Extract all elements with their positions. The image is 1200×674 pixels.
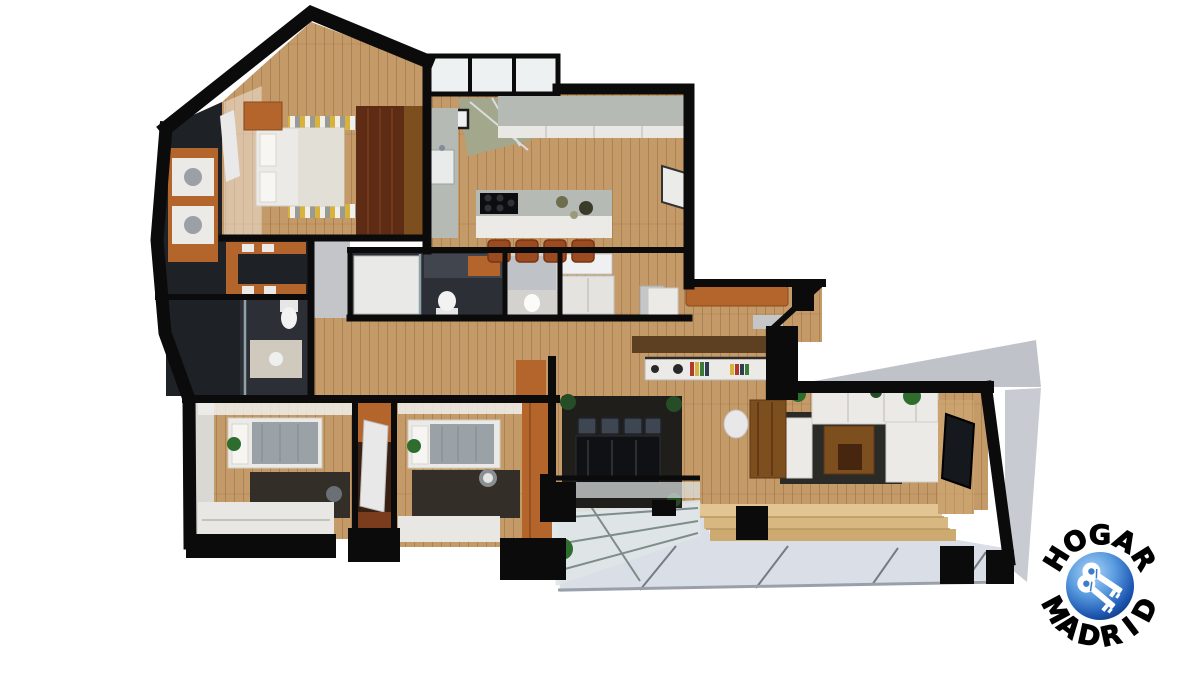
logo-letter: R [1098, 619, 1125, 654]
bath2-basin [269, 352, 283, 366]
bay-window-balcony [428, 56, 558, 94]
wall-counter-marble [498, 96, 689, 126]
closet-shelf-left [226, 254, 238, 284]
bedroom3-plant [407, 439, 421, 453]
bedroom2-plant [227, 437, 241, 451]
bedroom-dresser [244, 102, 282, 130]
island-bowl-2 [579, 201, 593, 215]
terrace-corner-block [986, 550, 1014, 584]
logo-letter: G [1089, 520, 1111, 551]
bedroom3-blanket [430, 424, 494, 464]
bed-pillow-1 [260, 134, 276, 166]
entry-white-cabinet [648, 288, 678, 318]
entry-bench [686, 286, 788, 306]
bed-pillow-2 [260, 172, 276, 202]
closet-box-1 [242, 244, 254, 252]
terrace-post-4 [940, 546, 974, 584]
bottom-wall-3 [500, 538, 566, 580]
bedroom3-balcony [398, 516, 500, 542]
dining-plant-1 [560, 394, 576, 410]
bath1-shower [354, 256, 420, 314]
sideboard-decor-1 [651, 365, 659, 373]
closet-box-3 [242, 286, 254, 294]
bedroom2-curtain-band [198, 402, 352, 415]
dining-chairs [578, 418, 661, 434]
coffee-table-inner [838, 444, 862, 470]
bottom-wall-2 [348, 528, 400, 562]
closet-box-4 [264, 286, 276, 294]
bedroom3-chair-seat [483, 473, 493, 483]
island-front [476, 216, 612, 238]
bath1-toilet [438, 291, 456, 311]
floor-plan-image: HOGAR MADRID [0, 0, 1200, 674]
roof-slab-top [798, 340, 1041, 387]
bedroom3-desk-rug [412, 470, 520, 518]
living-chaise-right [886, 422, 940, 482]
dining-plant-2 [666, 396, 682, 412]
hall-wall-block [766, 326, 798, 400]
terrace-post-2 [652, 500, 676, 516]
corridor-door-leaf [360, 420, 388, 512]
utility-room [168, 148, 218, 262]
terrace-post-3 [736, 506, 768, 540]
sink-faucet [439, 145, 445, 151]
logo: HOGAR MADRID [1035, 520, 1165, 654]
kitchen-sink [430, 150, 454, 184]
bedroom3-curtain-band [398, 402, 522, 414]
logo-globe [1066, 552, 1134, 620]
island-bowl-1 [556, 196, 568, 208]
hall-beam [632, 336, 768, 353]
floor-plan-svg: HOGAR MADRID [0, 0, 1200, 674]
washer-door [184, 168, 202, 186]
tv-screen [942, 414, 974, 488]
desk-chair [724, 410, 748, 438]
closet-box-2 [262, 244, 274, 252]
dryer-door [184, 216, 202, 234]
hall-orange-door [516, 360, 546, 396]
island-bowl-3 [570, 211, 578, 219]
terrace [548, 500, 1004, 592]
wc-toilet [524, 294, 540, 312]
terrace-step-1 [698, 504, 942, 517]
terrace-post-1 [548, 482, 576, 522]
living-desk [750, 400, 786, 478]
bath2-toilet [281, 307, 297, 329]
bed-duvet [298, 128, 344, 206]
entry-wall-block [792, 281, 814, 311]
dining-door-glass [558, 482, 700, 498]
bedroom2-chair [326, 486, 342, 502]
sideboard-decor-2 [673, 364, 683, 374]
bottom-wall-1 [186, 534, 336, 558]
gray-wall-block [311, 240, 350, 318]
